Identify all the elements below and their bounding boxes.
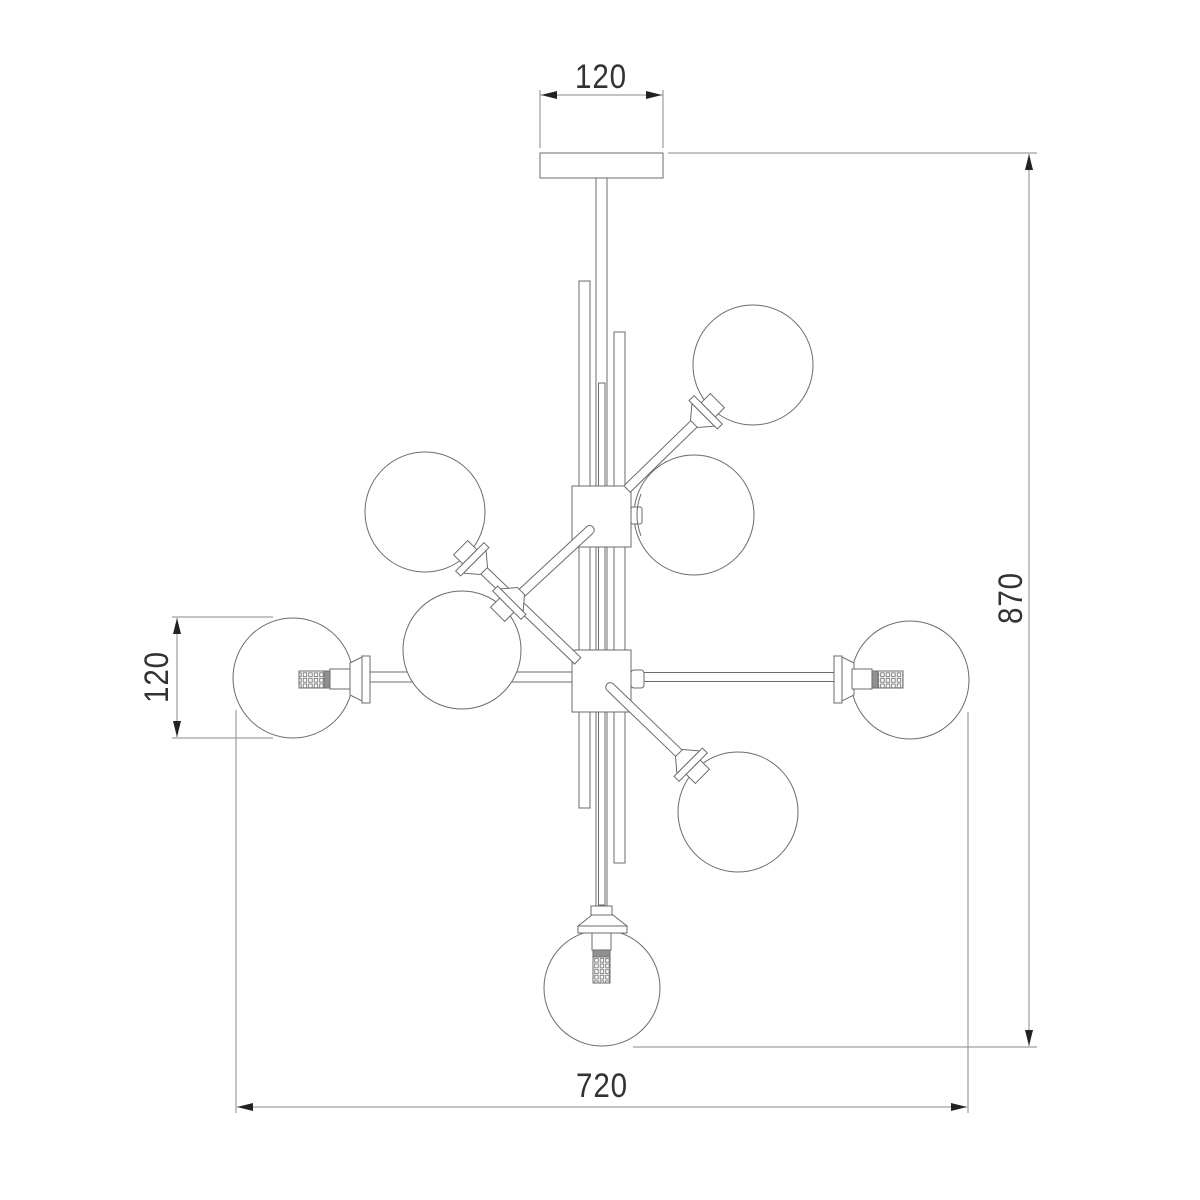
ceiling-mount-plate [540, 153, 663, 178]
arrowhead-top [1025, 154, 1033, 170]
globe-mid-right [634, 455, 754, 575]
arrowhead-right [951, 1103, 967, 1111]
dimension-overall-height: 870 [633, 153, 1037, 1047]
decorative-rod-right [614, 332, 625, 863]
arrowhead-right [646, 91, 662, 99]
globe-neck-nub-mid-right [631, 507, 642, 524]
arrowhead-left [237, 1103, 253, 1111]
dim-label-mount-width: 120 [575, 58, 627, 96]
dim-label-overall-height: 870 [992, 572, 1030, 624]
arm-right-hub-nub [631, 670, 644, 688]
arrowhead-left [541, 91, 557, 99]
arrowhead-bottom [1025, 1030, 1033, 1046]
chandelier-technical-drawing: 120 870 120 720 [0, 0, 1200, 1200]
dimension-mount-width: 120 [540, 58, 663, 148]
arrowhead-bottom [173, 721, 181, 737]
technical-drawing-page: 120 870 120 720 [0, 0, 1200, 1200]
arm-horizontal-right [643, 673, 835, 682]
decorative-rod-front [599, 383, 606, 905]
dim-label-overall-width: 720 [576, 1067, 628, 1105]
dim-label-globe-diameter: 120 [138, 651, 176, 703]
arrowhead-top [173, 618, 181, 634]
